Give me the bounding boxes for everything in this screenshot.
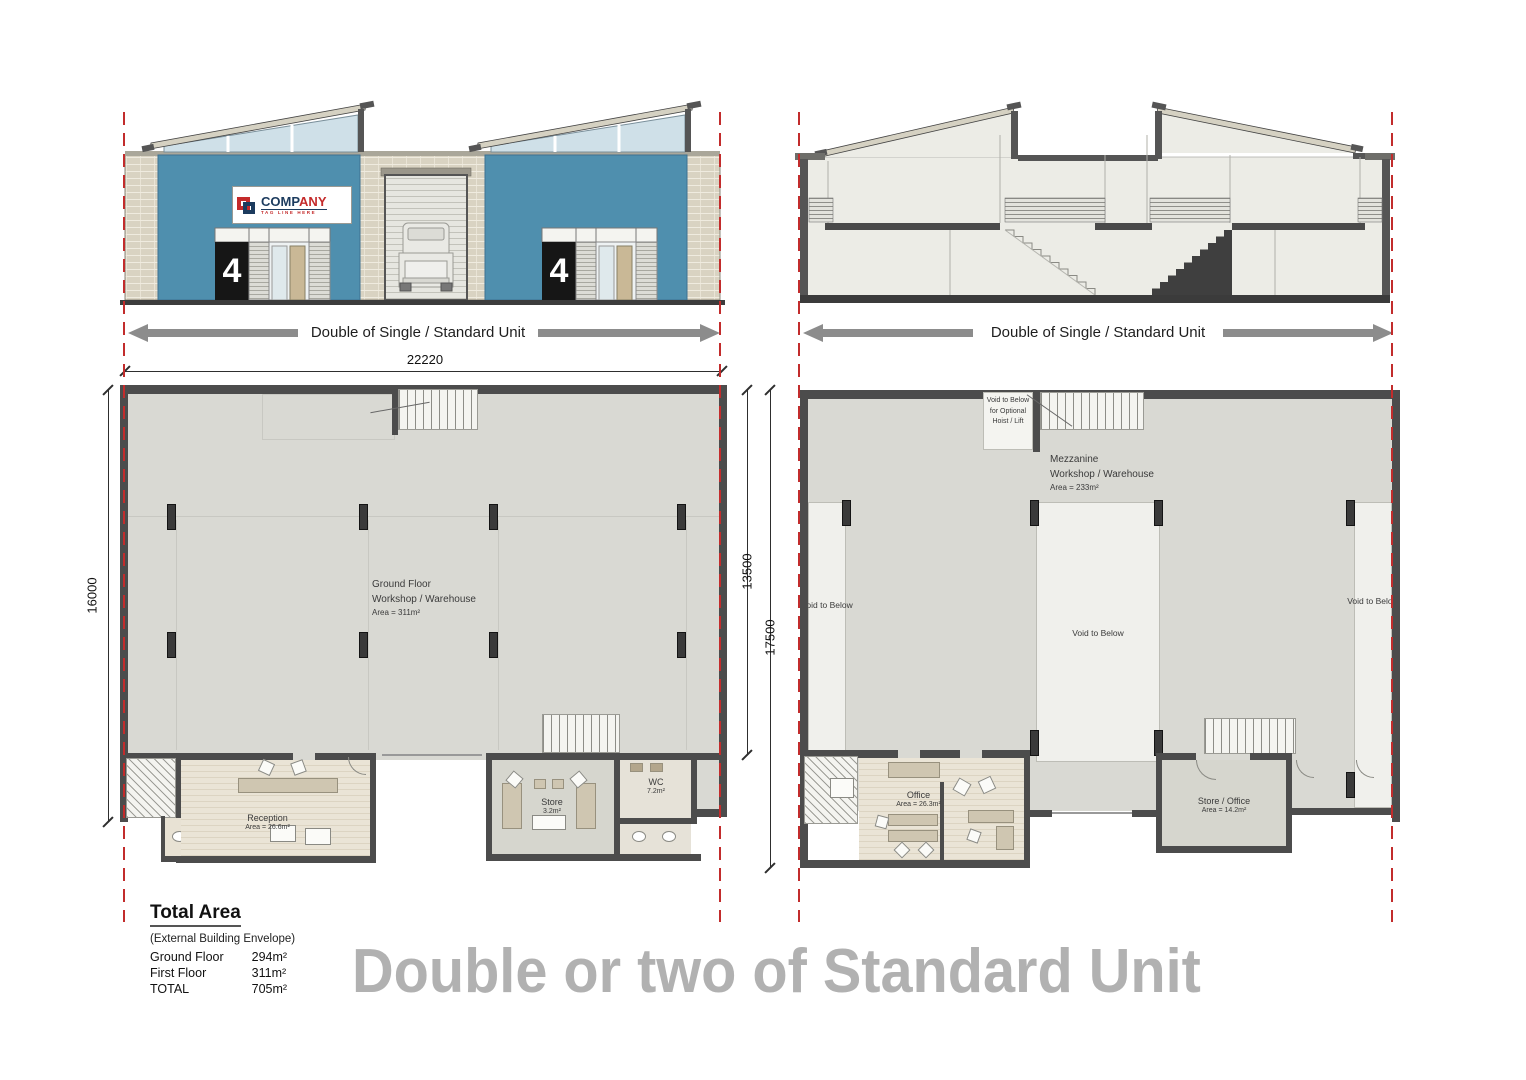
wall [486, 753, 719, 760]
dim-right-inner-label: 13500 [740, 542, 755, 602]
store-label: Store 3.2m² [512, 797, 592, 817]
glazing-line [1052, 812, 1132, 814]
wall [1030, 810, 1052, 817]
arrow-right-icon [700, 324, 720, 342]
office-label: Office Area = 26.3m² [876, 790, 961, 810]
wc-large-label: WC 7.2m² [626, 777, 686, 797]
company-name: COMPANY [261, 195, 327, 208]
wall [176, 856, 376, 863]
company-sign: COMPANY TAG LINE HERE [232, 186, 352, 224]
sheet-headline: Double or two of Standard Unit [352, 936, 1201, 1007]
desk [888, 830, 938, 842]
entrance-doors [382, 754, 482, 756]
arrow-bar [148, 329, 298, 337]
toilet [662, 831, 676, 842]
wall [982, 750, 1030, 758]
unit-number-left: 4 [215, 252, 249, 291]
drawing-sheet: COMPANY TAG LINE HERE 4 4 Double of Sing… [0, 0, 1526, 1080]
wall [486, 760, 492, 860]
workshop-label: Ground Floor Workshop / Warehouse Area =… [372, 577, 522, 619]
dim-line [108, 390, 109, 822]
void-center-label: Void to Below [1066, 628, 1130, 639]
wall [616, 854, 701, 861]
wall [691, 760, 697, 824]
mezzanine-label: Mezzanine Workshop / Warehouse Area = 23… [1050, 452, 1210, 494]
wall [920, 750, 960, 758]
desk [888, 814, 938, 826]
dim-line [125, 371, 722, 372]
wall [695, 809, 727, 817]
hoist-void-label: Void to Below for Optional Hoist / Lift [985, 396, 1031, 428]
void-left-label: Void to Below [800, 600, 854, 611]
desk [996, 826, 1014, 850]
reception-desk [238, 778, 338, 793]
stair [126, 758, 176, 818]
wall [1392, 390, 1400, 822]
wall [800, 860, 1030, 868]
basin [650, 763, 663, 772]
partition-outline [262, 394, 395, 440]
party-wall-line [1391, 112, 1393, 922]
wall [1286, 808, 1400, 815]
table-row: Ground Floor 294m² [150, 949, 287, 965]
arrow-left-icon [128, 324, 148, 342]
truck-silhouette [399, 223, 453, 291]
total-area-table: Ground Floor 294m² First Floor 311m² TOT… [150, 949, 287, 997]
arrow-bar [538, 329, 700, 337]
credenza [888, 762, 940, 778]
reception-label: Reception Area = 26.6m² [220, 813, 315, 833]
dim-right-outer-label: 17500 [763, 608, 778, 668]
first-floor-plan: Void to Below Void to Below Void to Belo… [800, 390, 1400, 868]
wall [315, 753, 376, 760]
table-row: First Floor 311m² [150, 965, 287, 981]
stair [1040, 392, 1144, 430]
section-drawing [795, 95, 1395, 310]
arrow-bar [1223, 329, 1373, 337]
wall [858, 750, 898, 758]
party-wall-line [719, 112, 721, 922]
total-area-subtitle: (External Building Envelope) [150, 933, 295, 945]
store-office-label: Store / Office Area = 14.2m² [1172, 796, 1276, 816]
wall [1024, 750, 1030, 868]
stair-landing [830, 778, 854, 798]
toilet-cubicles [620, 824, 691, 854]
total-area-title: Total Area [150, 902, 241, 927]
company-tagline: TAG LINE HERE [261, 209, 327, 216]
wall [1156, 753, 1162, 853]
toilet [632, 831, 646, 842]
party-wall-line [123, 112, 125, 922]
dim-width-label: 22220 [370, 352, 480, 367]
ground-floor-plan: Ground Floor Workshop / Warehouse Area =… [120, 385, 727, 867]
wall [370, 760, 376, 863]
total-area-block: Total Area (External Building Envelope) … [150, 902, 295, 997]
front-elevation-drawing [120, 95, 725, 307]
entrance-recess [376, 760, 486, 863]
wall [486, 854, 620, 861]
section-arrow-label: Double of Single / Standard Unit [973, 324, 1223, 341]
arrow-left-icon [803, 324, 823, 342]
wall [1156, 846, 1292, 853]
front-elevation-arrow-label: Double of Single / Standard Unit [298, 324, 538, 341]
wall [1286, 753, 1292, 853]
dim-left-label: 16000 [85, 566, 100, 626]
arrow-right-icon [1373, 324, 1393, 342]
desk [968, 810, 1014, 823]
basin [630, 763, 643, 772]
table-row: TOTAL 705m² [150, 981, 287, 997]
unit-number-right: 4 [542, 252, 576, 291]
wall [1156, 753, 1196, 760]
company-logo-icon [237, 193, 257, 217]
stair [1204, 718, 1296, 754]
stair [398, 389, 478, 430]
stair [542, 714, 620, 753]
party-wall-line [798, 112, 800, 922]
arrow-bar [823, 329, 973, 337]
